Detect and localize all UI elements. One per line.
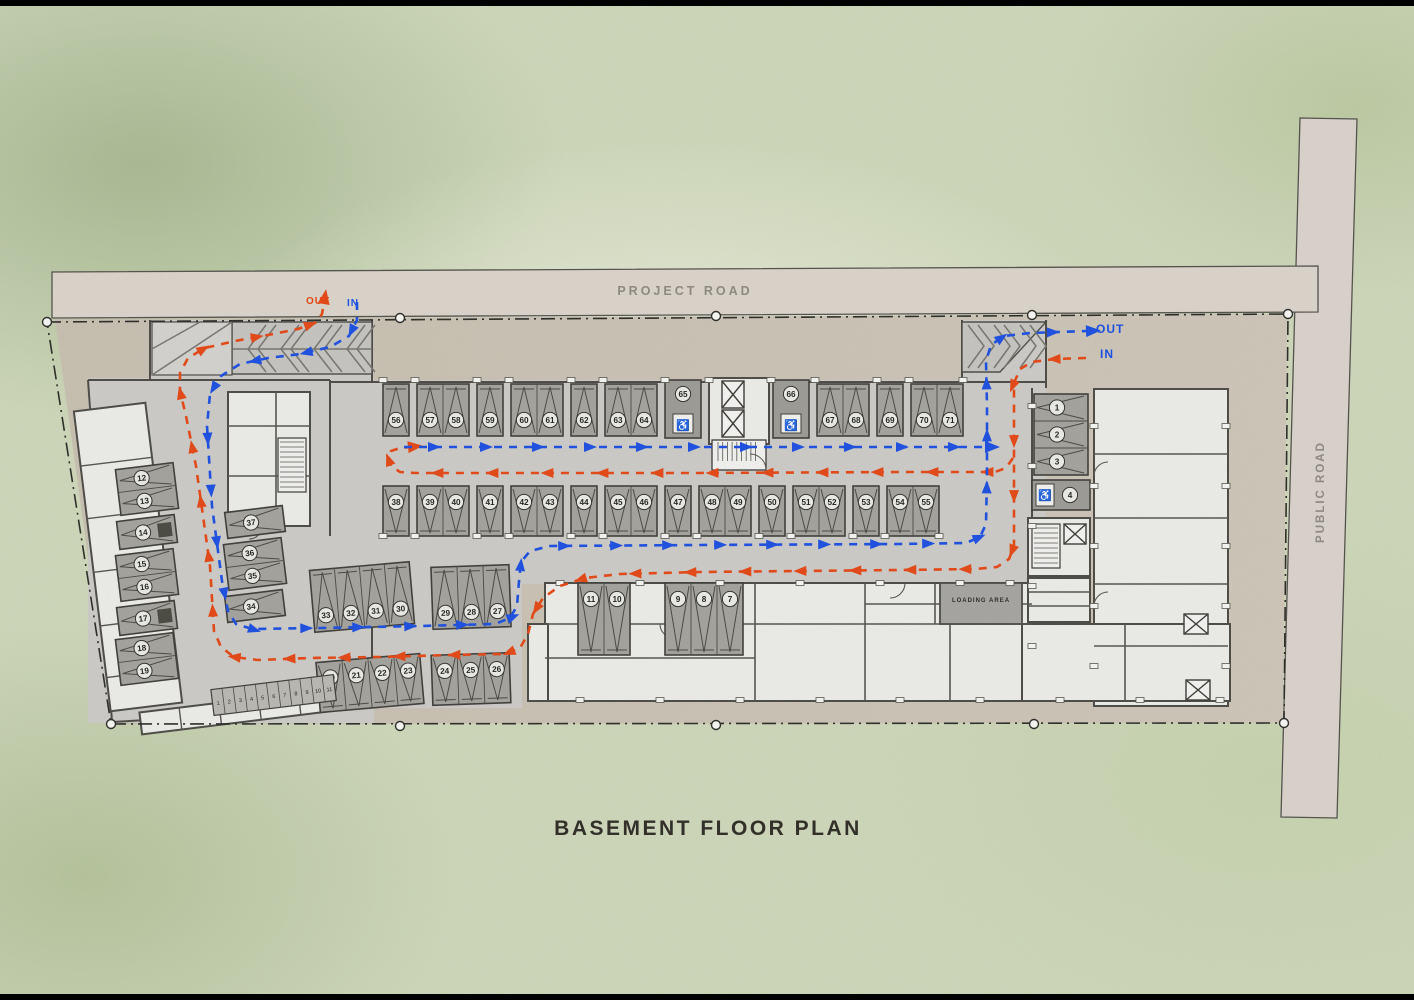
flow-right-in-label: IN <box>1100 347 1114 361</box>
flow-left-out-label: OUT <box>306 296 330 307</box>
floor-plan-drawing: 56575859606162636465♿66♿6768697071383940… <box>0 6 1414 994</box>
plan-title: BASEMENT FLOOR PLAN <box>508 817 908 841</box>
flow-right-out-label: OUT <box>1096 322 1124 336</box>
project-road-label: PROJECT ROAD <box>560 284 810 298</box>
basement-floor-plan-canvas: 56575859606162636465♿66♿6768697071383940… <box>0 6 1414 994</box>
loading-area-label: LOADING AREA <box>941 598 1021 604</box>
public-road-label: PUBLIC ROAD <box>1315 437 1327 547</box>
flow-left-in-label: IN <box>347 298 359 309</box>
